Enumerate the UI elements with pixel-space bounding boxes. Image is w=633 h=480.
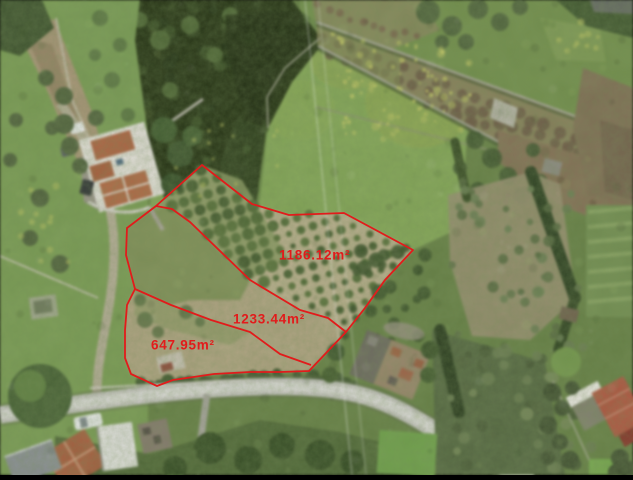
svg-text:1186.12m²: 1186.12m² bbox=[279, 248, 350, 263]
svg-text:647.95m²: 647.95m² bbox=[151, 338, 215, 353]
svg-text:1233.44m²: 1233.44m² bbox=[233, 312, 305, 327]
